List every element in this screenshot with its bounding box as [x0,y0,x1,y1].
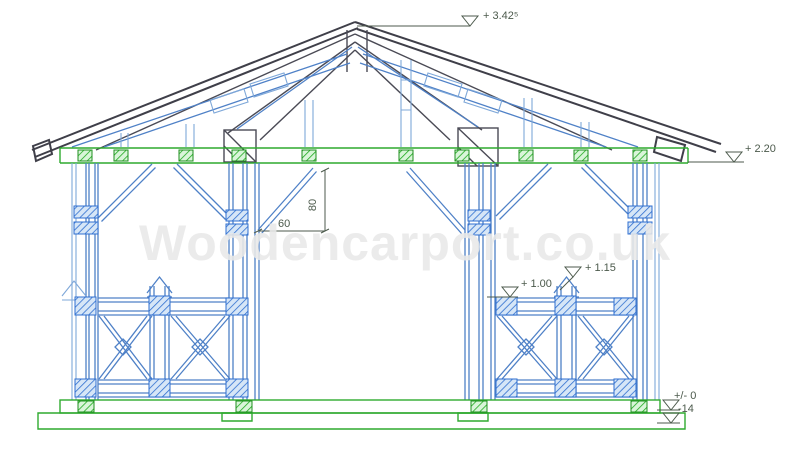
footing [38,413,685,429]
top-plate-beam [60,148,688,163]
dimension-label-80: 80 [307,199,319,211]
ridge-level-label: + 3.42⁵ [483,10,518,22]
watermark-text: Woodencarport.co.uk [139,215,671,271]
post-right-outer-edge [655,163,659,400]
x-cross-panel [99,316,152,379]
x-cross-panel [497,316,557,379]
posts [72,163,659,400]
railing-left-bay [62,277,248,397]
post-cap [147,277,172,297]
x-cross-panel [578,316,634,379]
level-triangle-icon [502,287,518,297]
eave-level-label: + 2.20 [745,143,776,155]
post-right [633,163,647,400]
level-marker-railing: + 1.00 [487,278,552,297]
rail-connector-blocks [496,296,636,397]
level-marker-foundation: -14 [657,403,694,423]
level-triangle-icon [726,152,742,162]
elevation-drawing: 60 80 + 3.42⁵ + 2.20 + 1.15 + 1.00 +/- 0… [0,0,800,470]
post-anchor-blocks [78,401,647,412]
ground-sill [60,400,660,413]
post-left [86,163,98,400]
ground-level-label: +/- 0 [674,390,696,402]
footing-steps [222,413,488,421]
post-cap [554,277,579,297]
post-right-center [465,163,495,400]
level-marker-eave: + 2.20 [688,143,776,162]
foundation-level-label: -14 [678,403,694,415]
foundation [38,400,685,429]
level-marker-ridge: + 3.42⁵ [357,10,518,26]
plate-connector-blocks [78,150,647,161]
truss-verticals [121,60,589,147]
railing-right-bay [496,277,636,397]
post-left-center [229,163,259,400]
carport-elevation-svg: 60 80 + 3.42⁵ + 2.20 + 1.15 + 1.00 +/- 0… [0,0,800,470]
level-triangle-icon [663,413,679,423]
level-triangle-icon [462,16,478,26]
x-cross-panel [171,316,230,379]
railing-level-label: + 1.00 [521,278,552,290]
